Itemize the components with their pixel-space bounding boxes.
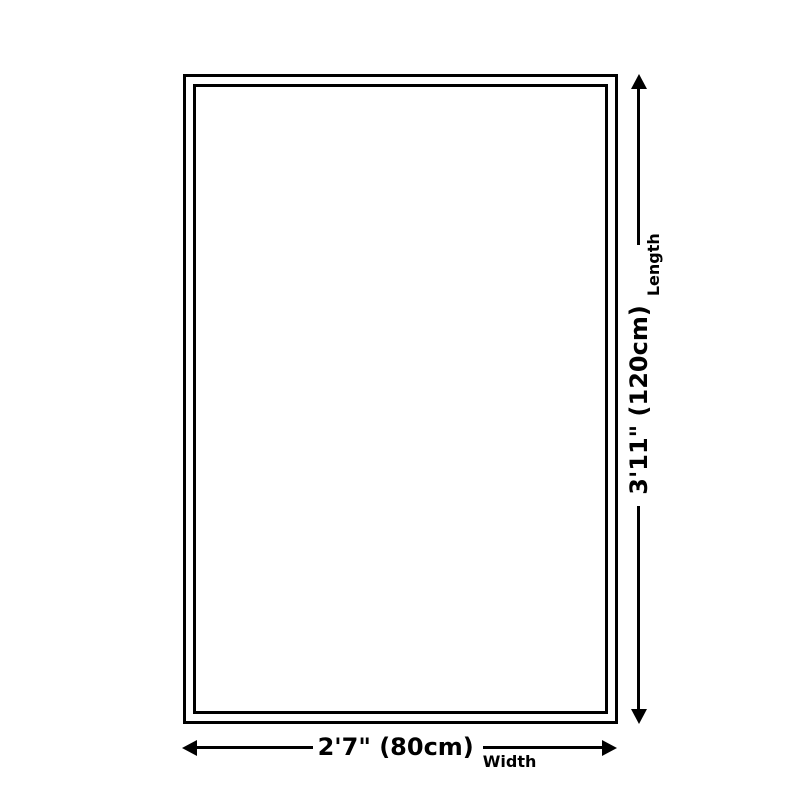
length-line-bottom-segment [637, 506, 640, 712]
length-value: 3'11" (120cm) [625, 305, 653, 495]
length-line-top-segment [637, 87, 640, 245]
width-line-left-segment [195, 746, 313, 749]
arrowhead-down-icon [631, 709, 647, 724]
rug-outline-inner [193, 84, 608, 714]
length-label: 3'11" (120cm) Length [625, 233, 653, 495]
arrowhead-up-icon [631, 74, 647, 89]
rug-outline-outer [183, 74, 618, 724]
length-axis-label: Length [645, 233, 664, 296]
size-diagram: 3'11" (120cm) Length 2'7" (80cm) Width [0, 0, 800, 800]
arrowhead-right-icon [602, 740, 617, 756]
arrowhead-left-icon [182, 740, 197, 756]
width-axis-label: Width [483, 753, 537, 772]
width-value: 2'7" (80cm) [318, 733, 474, 761]
width-label: 2'7" (80cm) Width [318, 733, 537, 761]
